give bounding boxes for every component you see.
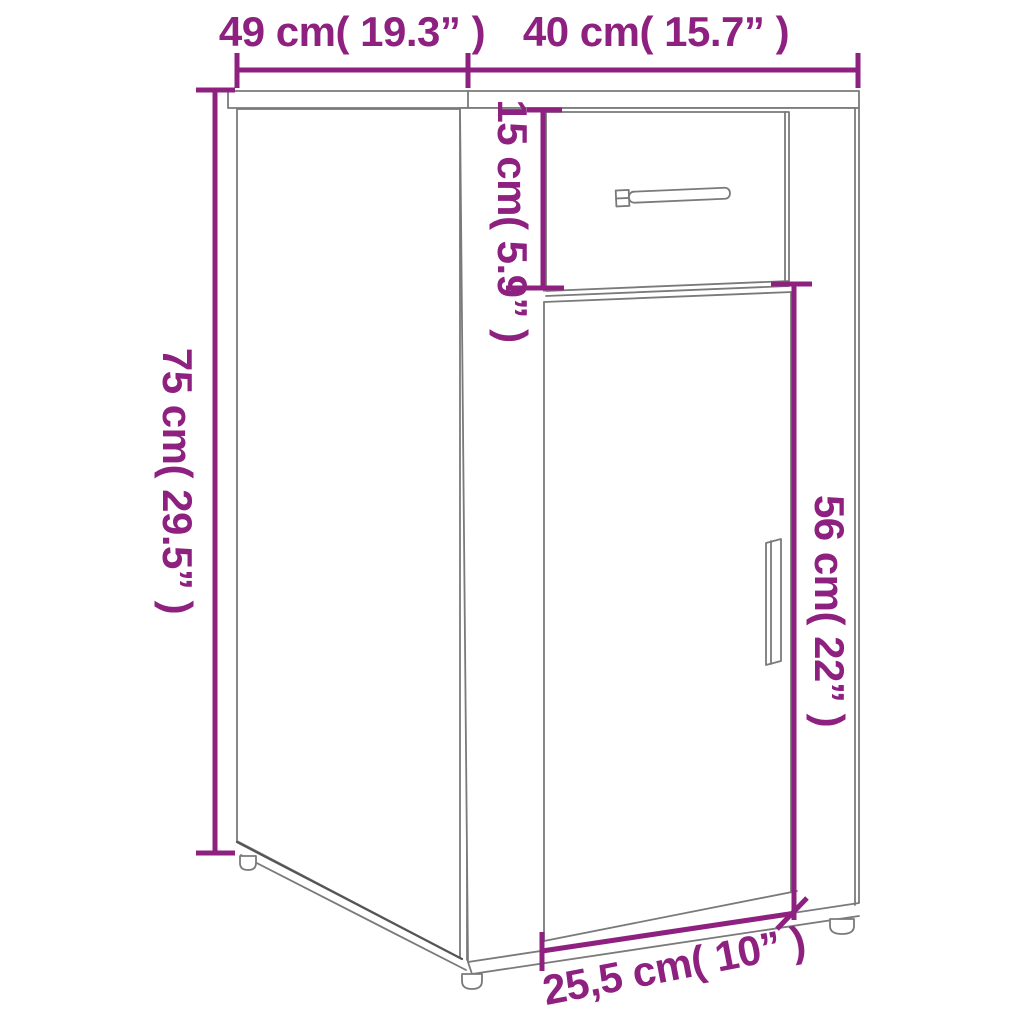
dim-label-top-depth: 49 cm( 19.3” )	[219, 11, 485, 53]
door-handle	[766, 539, 781, 665]
dim-line-height	[196, 88, 235, 855]
dim-line-top	[235, 53, 860, 88]
dimension-diagram: 49 cm( 19.3” ) 40 cm( 15.7” ) 75 cm( 29.…	[0, 0, 1024, 1024]
dim-label-drawer-height: 15 cm( 5.9” )	[491, 99, 533, 342]
foot-back-left	[240, 856, 256, 870]
dim-label-top-width: 40 cm( 15.7” )	[523, 11, 789, 53]
top-panel	[228, 91, 859, 108]
dim-label-door-height: 56 cm( 22” )	[808, 495, 850, 727]
foot-front-left	[462, 974, 482, 989]
drawer-front	[546, 112, 789, 296]
dim-label-height: 75 cm( 29.5” )	[156, 348, 198, 614]
side-panel	[237, 108, 467, 970]
foot-front-right	[830, 919, 854, 934]
